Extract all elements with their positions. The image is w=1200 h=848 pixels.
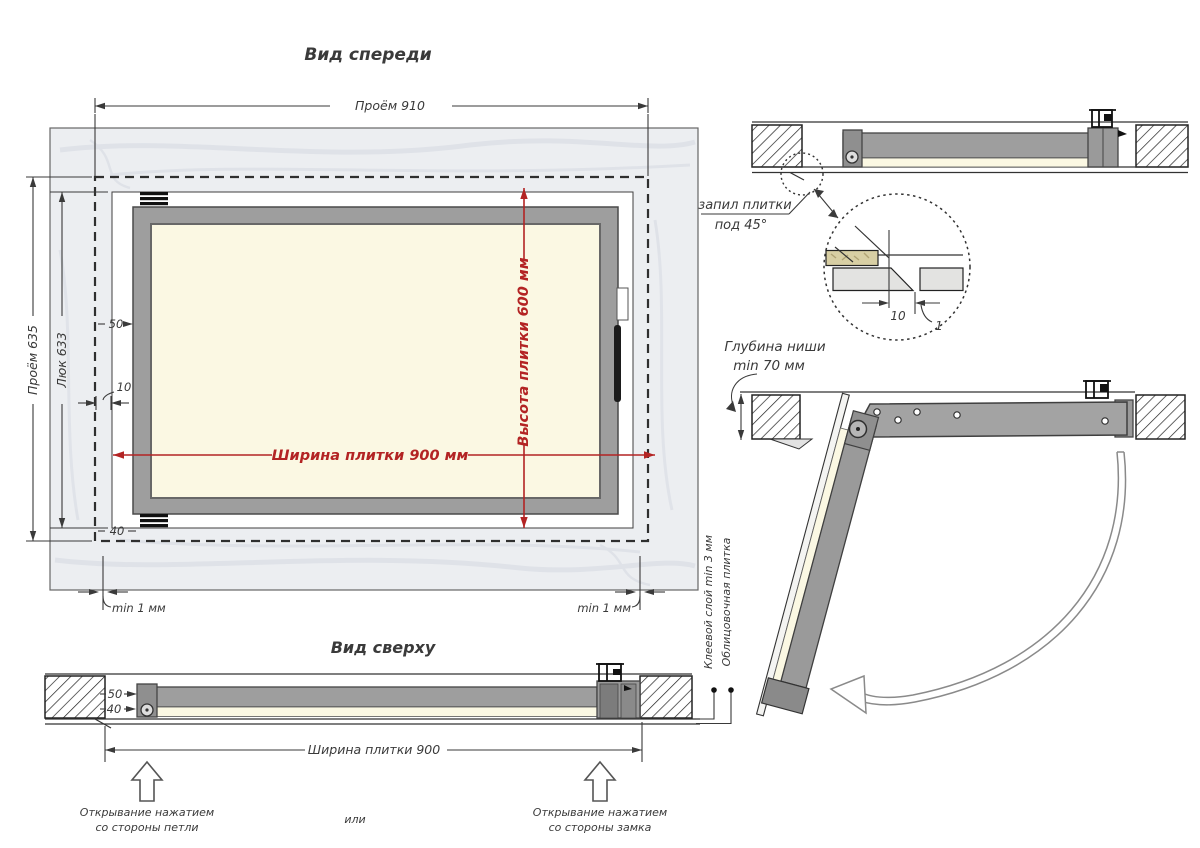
label-facing-tile: Облицовочная плитка bbox=[720, 537, 733, 666]
label-niche-depth-2: min 70 мм bbox=[733, 358, 805, 374]
label-opening-width: Проём 910 bbox=[355, 98, 425, 113]
label-offset-40: 40 bbox=[110, 524, 125, 538]
latch-slot bbox=[617, 288, 628, 320]
label-open-hinge-2: со стороны петли bbox=[95, 821, 198, 834]
wall-section-left bbox=[752, 125, 802, 167]
label-open-lock-2: со стороны замка bbox=[549, 821, 652, 834]
swing-arrowhead bbox=[831, 676, 866, 713]
open-door bbox=[757, 393, 885, 725]
label-tile-height: Высота плитки 600 мм bbox=[516, 257, 532, 446]
label-or: или bbox=[344, 813, 365, 826]
push-arrow-hinge-side bbox=[132, 762, 162, 801]
tile-edge-flare bbox=[770, 439, 812, 449]
label-offset-50: 50 bbox=[109, 317, 124, 331]
label-tile-cut-2: под 45° bbox=[715, 218, 768, 233]
front-view bbox=[26, 98, 698, 610]
swing-arc bbox=[856, 452, 1126, 705]
label-niche-depth-1: Глубина ниши bbox=[724, 339, 826, 355]
label-tile-width: Ширина плитки 900 мм bbox=[272, 448, 469, 464]
label-gap-left: min 1 мм bbox=[112, 601, 166, 615]
label-hatch-height: Люк 633 bbox=[54, 332, 69, 388]
label-detail-1: 1 bbox=[935, 319, 943, 333]
closed-section-view bbox=[701, 110, 1188, 340]
drawing-canvas: Вид спереди Проём 910 Проём 635 Люк 633 … bbox=[0, 0, 1200, 848]
wall-section-right bbox=[640, 676, 692, 718]
label-tile-cut-1: запил плитки bbox=[698, 198, 791, 213]
label-offset-10: 10 bbox=[117, 380, 132, 394]
wall-section-right bbox=[1136, 125, 1188, 167]
latch-bar bbox=[614, 325, 621, 402]
adjacent-tile bbox=[920, 268, 963, 291]
topview-label-width: Ширина плитки 900 bbox=[308, 742, 440, 757]
topview-label-50: 50 bbox=[108, 687, 123, 701]
label-gap-right: min 1 мм bbox=[577, 601, 631, 615]
top-view bbox=[45, 664, 734, 801]
topview-label-40: 40 bbox=[107, 702, 122, 716]
door-profile bbox=[843, 133, 1095, 158]
wall-section-left bbox=[752, 395, 800, 439]
front-view-title: Вид спереди bbox=[304, 45, 431, 65]
label-open-hinge-1: Открывание нажатием bbox=[80, 806, 214, 819]
top-view-title: Вид сверху bbox=[331, 638, 436, 657]
push-arrow-lock-side bbox=[585, 762, 615, 801]
door-tile-strip bbox=[857, 158, 1095, 167]
open-section-view bbox=[726, 374, 1185, 725]
technical-drawing-page: Вид спереди Проём 910 Проём 635 Люк 633 … bbox=[0, 0, 1200, 848]
wall-section-right bbox=[1136, 395, 1185, 439]
layer-leaders bbox=[696, 692, 731, 724]
label-glue-layer: Клеевой слой min 3 мм bbox=[702, 535, 715, 669]
hinge-top bbox=[140, 192, 168, 205]
door-profile bbox=[155, 687, 597, 707]
label-open-lock-1: Открывание нажатием bbox=[533, 806, 667, 819]
label-opening-height: Проём 635 bbox=[25, 325, 40, 395]
wall-section-left bbox=[45, 676, 105, 718]
wall-tile-edge bbox=[826, 251, 878, 266]
door-tile-strip bbox=[157, 707, 597, 717]
label-detail-10: 10 bbox=[890, 309, 906, 323]
hinge-bottom bbox=[140, 514, 168, 527]
